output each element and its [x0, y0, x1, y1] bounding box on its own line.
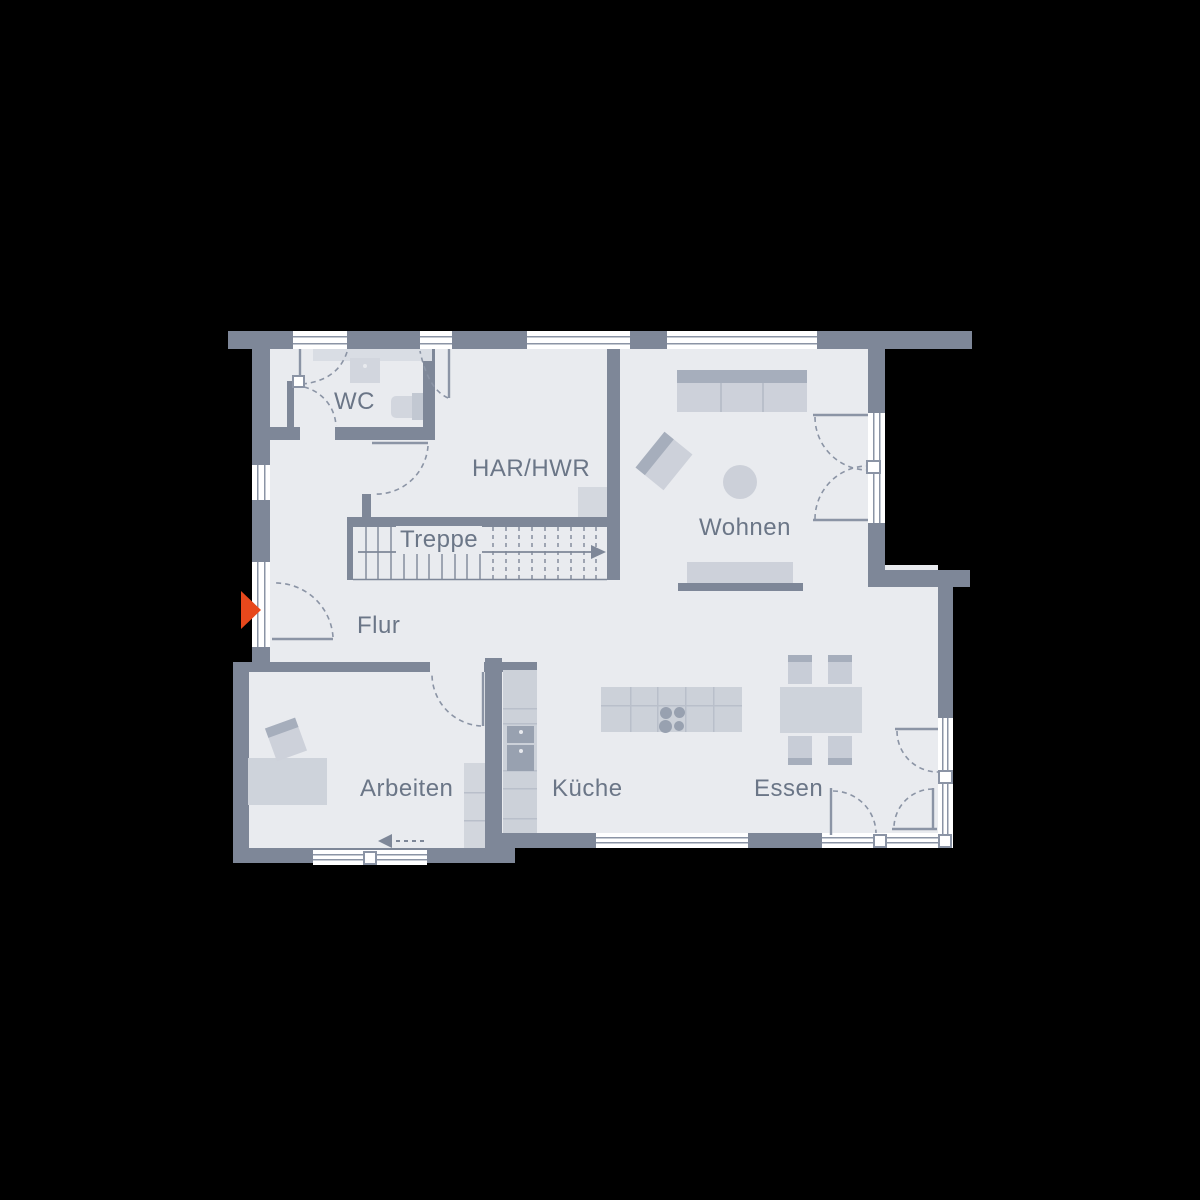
- dining-right-door-handle: [938, 770, 953, 784]
- room-label-wohnen: Wohnen: [699, 514, 791, 542]
- stair-treads-dashed: [493, 527, 596, 579]
- door-swing-entrance: [273, 583, 333, 637]
- room-label-essen: Essen: [754, 775, 823, 803]
- door-swing-dining-bottom: [833, 791, 876, 833]
- dining-bottom-door-handle: [873, 834, 887, 848]
- office-direction-arrow-icon: [378, 834, 392, 848]
- door-swing-wc-b: [304, 387, 336, 426]
- door-swing-dining-right: [897, 731, 938, 772]
- entry-arrow-icon: [241, 591, 261, 629]
- room-label-arbeiten: Arbeiten: [360, 775, 453, 803]
- floor-plan: WC HAR/HWR Treppe Wohnen Flur Arbeiten K…: [0, 0, 1200, 1200]
- room-label-kueche: Küche: [552, 775, 623, 803]
- room-label-flur: Flur: [357, 612, 400, 640]
- door-swing-living-lower: [815, 466, 868, 519]
- room-label-har-hwr: HAR/HWR: [472, 455, 590, 483]
- door-swing-dining-corner: [894, 789, 933, 827]
- door-swing-office: [432, 673, 481, 726]
- living-door-handle: [866, 460, 881, 474]
- corner-post: [938, 834, 952, 848]
- door-swing-har-interior: [373, 446, 428, 494]
- door-swing-living-upper: [815, 417, 868, 470]
- wc-door-handle: [292, 375, 305, 388]
- stair-direction-arrow-icon: [591, 545, 606, 559]
- linework-layer: [0, 0, 1200, 1200]
- door-swing-wc-a: [303, 352, 347, 384]
- door-swing-har-exterior: [420, 351, 448, 398]
- room-label-treppe: Treppe: [396, 526, 482, 554]
- office-window-handle: [363, 851, 377, 865]
- room-label-wc: WC: [334, 388, 375, 416]
